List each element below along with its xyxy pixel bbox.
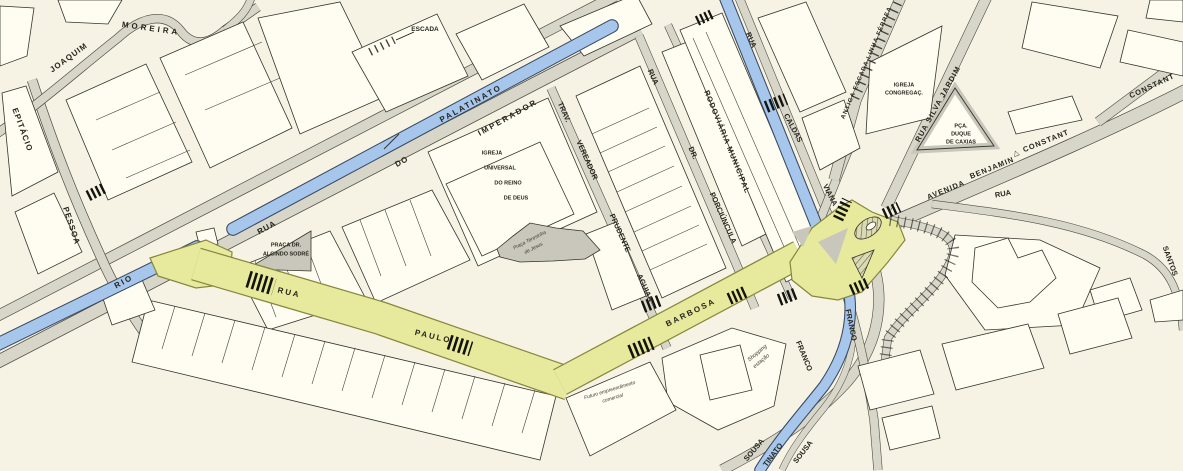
poi-label-igreja-universal-line1: IGREJA (482, 151, 502, 157)
poi-label-igreja-congregacao-line1: IGREJA (894, 83, 914, 89)
poi-label-pca-duque-line2: DUQUE (951, 132, 971, 138)
poi-label-praca-alcindo-line2: ALCINDO SODRÉ (263, 252, 309, 258)
poi-label-pca-duque-line1: PÇA. (954, 124, 967, 130)
city-map-canvas (0, 0, 1183, 471)
poi-label-praca-alcindo-line1: PRAÇA DR. (271, 243, 301, 249)
poi-label-igreja-universal-line4: DE DEUS (504, 196, 528, 202)
stairs-label-escada: ESCADA (411, 27, 438, 34)
city-street-map: JOAQUIM MOREIRA EPITÁCIO PESSOA RIO RUA … (0, 0, 1183, 471)
poi-label-igreja-congregacao-line2: CONGREGAÇ. (885, 91, 923, 97)
poi-label-igreja-universal-line3: DO REINO (494, 181, 521, 187)
poi-label-igreja-universal-line2: UNIVERSAL (484, 166, 516, 172)
poi-label-pca-duque-line3: DE CAXIAS (946, 140, 976, 146)
